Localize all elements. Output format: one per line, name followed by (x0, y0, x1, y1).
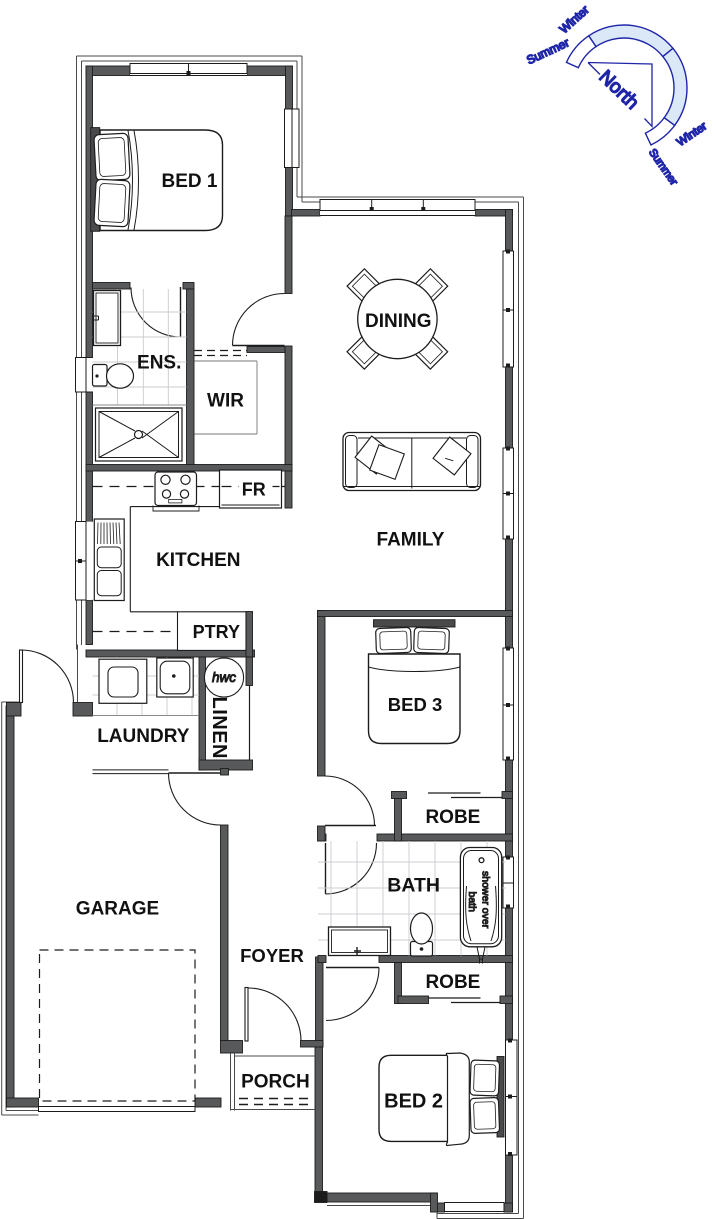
svg-text:LAUNDRY: LAUNDRY (97, 726, 190, 747)
svg-text:BED 3: BED 3 (388, 694, 443, 715)
svg-text:FR: FR (242, 480, 266, 500)
svg-text:BATH: BATH (387, 875, 440, 897)
svg-text:ROBE: ROBE (425, 807, 480, 828)
svg-text:DINING: DINING (365, 311, 432, 332)
svg-text:PORCH: PORCH (241, 1072, 310, 1093)
svg-text:BED 2: BED 2 (384, 1091, 443, 1113)
svg-text:KITCHEN: KITCHEN (156, 550, 240, 571)
svg-text:GARAGE: GARAGE (76, 899, 159, 920)
svg-text:shower over: shower over (480, 871, 492, 929)
svg-text:ENS.: ENS. (137, 353, 181, 374)
svg-text:hwc: hwc (212, 670, 236, 685)
svg-text:FAMILY: FAMILY (377, 530, 445, 551)
svg-text:BED 1: BED 1 (162, 171, 218, 192)
svg-text:ROBE: ROBE (425, 972, 480, 993)
svg-text:FOYER: FOYER (240, 945, 304, 966)
svg-text:WIR: WIR (207, 391, 244, 412)
svg-text:bath: bath (466, 892, 478, 913)
svg-text:LINEN: LINEN (208, 697, 230, 760)
svg-text:PTRY: PTRY (193, 622, 240, 642)
